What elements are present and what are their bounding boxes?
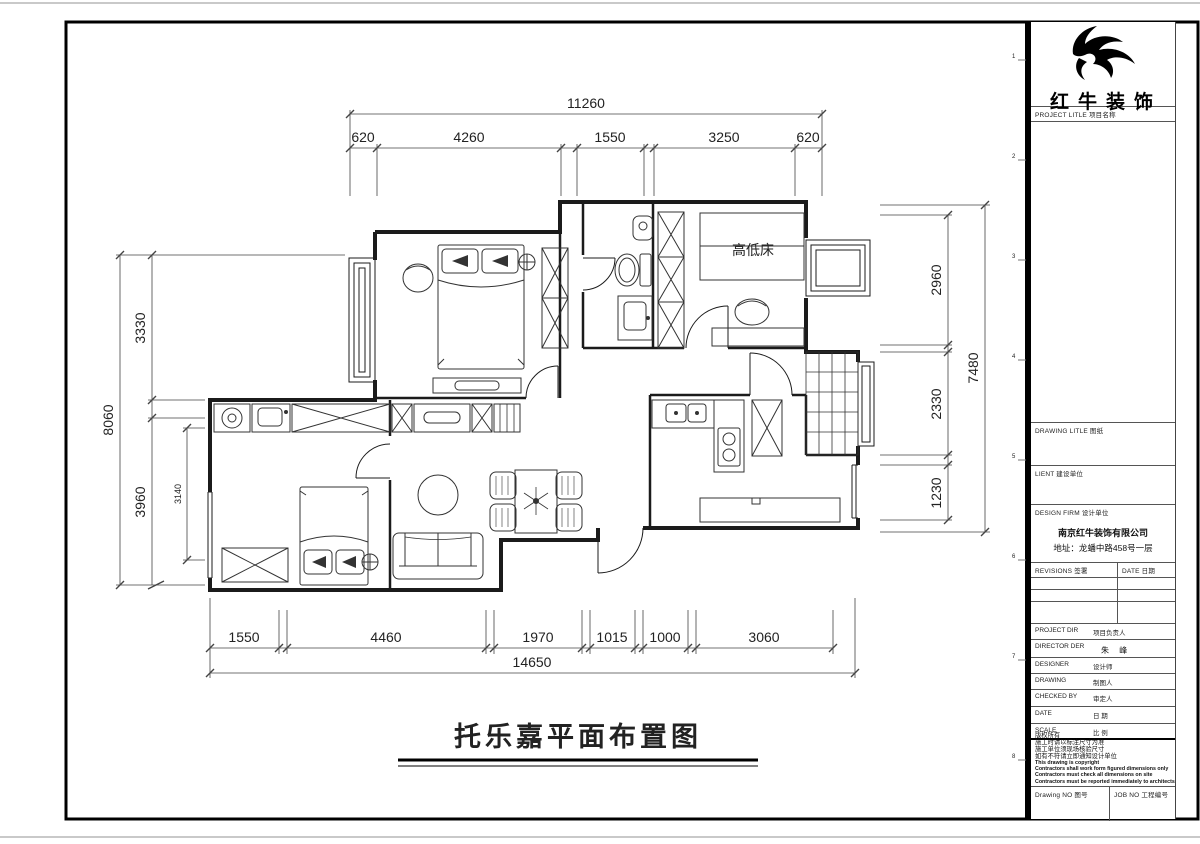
project-title-label: PROJECT LITLE 项目名称: [1031, 107, 1175, 119]
dim-label: 3960: [132, 486, 148, 517]
interior-walls: [375, 202, 858, 590]
dim-right: 2960 2330 1230 7480: [880, 201, 990, 536]
bedroom2-door: [356, 444, 390, 478]
dim-label: 4460: [370, 629, 401, 645]
dining-set: [490, 470, 582, 533]
signature-row-checked: CHECKED BY 审定人: [1031, 690, 1175, 707]
drawing-title-row: DRAWING LITLE 图纸: [1031, 423, 1175, 466]
title-block: 红牛装饰 PROJECT LITLE 项目名称 DRAWING LITLE 图纸…: [1031, 22, 1176, 819]
kids-room-furniture: [658, 212, 804, 348]
zone-ticks: 1 2 3 4 5 6 7 8: [1012, 54, 1026, 760]
dim-label: 1970: [522, 629, 553, 645]
copyright-line: 版权所有: [1035, 732, 1175, 739]
sheet-frame: [66, 21, 1198, 820]
master-bedroom-furniture: [403, 245, 568, 393]
project-title-row: PROJECT LITLE 项目名称: [1031, 107, 1175, 122]
zone-tick-label: 4: [1012, 354, 1016, 360]
signature-row-designer: DESIGNER 设计师: [1031, 658, 1175, 674]
rednow-bird-logo-icon: [1043, 24, 1163, 82]
row-en-label: PROJECT DIR: [1035, 627, 1078, 634]
dim-label: 3330: [132, 312, 148, 343]
project-title-space: [1031, 122, 1175, 423]
dim-label: 14650: [513, 654, 552, 670]
zone-tick-label: 2: [1012, 154, 1016, 160]
row-en-label: DRAWING: [1035, 677, 1066, 684]
copyright-line: 如有不符请立即通知设计单位: [1035, 753, 1175, 760]
signature-row-project-dir: PROJECT DIR 项目负责人: [1031, 624, 1175, 640]
dim-label: 2330: [928, 388, 944, 419]
row-en-label: DATE: [1035, 710, 1052, 717]
entry-door: [598, 528, 643, 573]
zone-tick-label: 3: [1012, 254, 1016, 260]
revisions-header-row: REVISIONS 签署 DATE 日期: [1031, 563, 1175, 578]
sheet-svg: 1 2 3 4 5 6 7 8: [0, 0, 1200, 844]
copyright-block: 版权所有 施工时请以标注尺寸为准 施工单位须现场核验尺寸 如有不符请立即通知设计…: [1031, 730, 1175, 787]
dim-label: 1015: [596, 629, 627, 645]
drawing-number-row: Drawing NO 图号 JOB NO 工程编号: [1031, 787, 1175, 819]
revisions-label: REVISIONS 签署: [1031, 563, 1121, 579]
tiled-balcony: [806, 352, 858, 455]
bedroom2-furniture: [222, 487, 378, 585]
bathroom-fixtures: [615, 216, 653, 340]
dim-bottom: 1550 4460 1970 1015 1000 3060 14650: [206, 598, 859, 678]
dim-label: 11260: [567, 95, 605, 111]
copyright-line: 施工时请以标注尺寸为准: [1035, 739, 1175, 746]
dim-label: 620: [351, 129, 375, 145]
row-en-label: CHECKED BY: [1035, 693, 1077, 700]
job-no-label: JOB NO 工程编号: [1109, 787, 1175, 821]
revisions-empty-row: [1031, 590, 1175, 602]
plan-title-group: 托乐嘉平面布置图: [398, 722, 758, 766]
drawing-no-label: Drawing NO 图号: [1031, 787, 1113, 821]
master-bedroom-door: [526, 366, 558, 398]
copyright-line: 施工单位须现场核验尺寸: [1035, 746, 1175, 753]
plan-title: 托乐嘉平面布置图: [454, 722, 702, 752]
revisions-empty-row: [1031, 578, 1175, 590]
dim-label: 7480: [965, 352, 981, 383]
ceiling-fan-symbol: [524, 487, 548, 515]
signature-row-director: DIRECTOR DER 朱 峰: [1031, 640, 1175, 658]
drawing-sheet: 1 2 3 4 5 6 7 8: [0, 0, 1200, 844]
firm-address: 地址：龙蟠中路458号一层: [1031, 542, 1175, 554]
signature-row-date: DATE 日 期: [1031, 707, 1175, 724]
exterior-walls: [210, 202, 858, 590]
cabinet-strip: [214, 404, 520, 432]
client-label: LIENT 建设单位: [1031, 466, 1175, 478]
row-cn-label: 制图人: [1093, 677, 1113, 687]
dim-label: 1230: [928, 477, 944, 508]
living-dining-furniture: [393, 470, 582, 579]
kitchen-door: [750, 353, 792, 395]
revisions-empty-row: [1031, 602, 1175, 624]
row-value: 朱 峰: [1101, 645, 1131, 656]
zone-tick-label: 8: [1012, 754, 1016, 760]
signature-row-drawing: DRAWING 制图人: [1031, 674, 1175, 690]
dim-label: 3140: [173, 484, 183, 504]
row-cn-label: 审定人: [1093, 693, 1113, 703]
row-en-label: DESIGNER: [1035, 661, 1069, 668]
dim-label: 1000: [649, 629, 680, 645]
zone-tick-label: 6: [1012, 554, 1016, 560]
dim-label: 8060: [100, 404, 116, 435]
sofa: [393, 533, 483, 579]
zone-tick-label: 5: [1012, 454, 1016, 460]
dim-label: 4260: [453, 129, 484, 145]
dim-label: 1550: [594, 129, 625, 145]
drawing-title-label: DRAWING LITLE 图纸: [1031, 423, 1175, 435]
kitchen-fixtures: [652, 400, 840, 522]
date-column-label: DATE 日期: [1117, 563, 1175, 579]
floor-plan: 11260 620 4260 1550 3250 620 1550 4460 1…: [100, 95, 990, 678]
row-cn-label: 项目负责人: [1093, 627, 1126, 637]
dim-top: 11260 620 4260 1550 3250 620: [346, 95, 826, 196]
design-firm-label: DESIGN FIRM 设计单位: [1031, 505, 1175, 517]
row-cn-label: 设计师: [1093, 661, 1113, 671]
client-row: LIENT 建设单位: [1031, 466, 1175, 505]
logo-area: 红牛装饰: [1031, 22, 1175, 107]
row-cn-label: 日 期: [1093, 710, 1108, 720]
kids-balcony-window: [806, 240, 870, 296]
dim-label: 1550: [228, 629, 259, 645]
bathroom-door: [583, 258, 615, 290]
kids-room-door: [686, 306, 728, 348]
dim-label: 3250: [708, 129, 739, 145]
master-bay-window: [349, 258, 375, 382]
firm-name: 南京红牛装饰有限公司: [1031, 526, 1175, 539]
room-label-bunk-bed: 高低床: [732, 242, 774, 258]
zone-tick-label: 7: [1012, 654, 1016, 660]
dim-label: 3060: [748, 629, 779, 645]
dim-label: 620: [796, 129, 820, 145]
zone-tick-label: 1: [1012, 54, 1016, 60]
dim-label: 2960: [928, 264, 944, 295]
row-en-label: DIRECTOR DER: [1035, 643, 1084, 650]
copyright-line-en: Contractors must be reported immediately…: [1035, 779, 1175, 785]
design-firm-row: DESIGN FIRM 设计单位 南京红牛装饰有限公司 地址：龙蟠中路458号一…: [1031, 505, 1175, 563]
